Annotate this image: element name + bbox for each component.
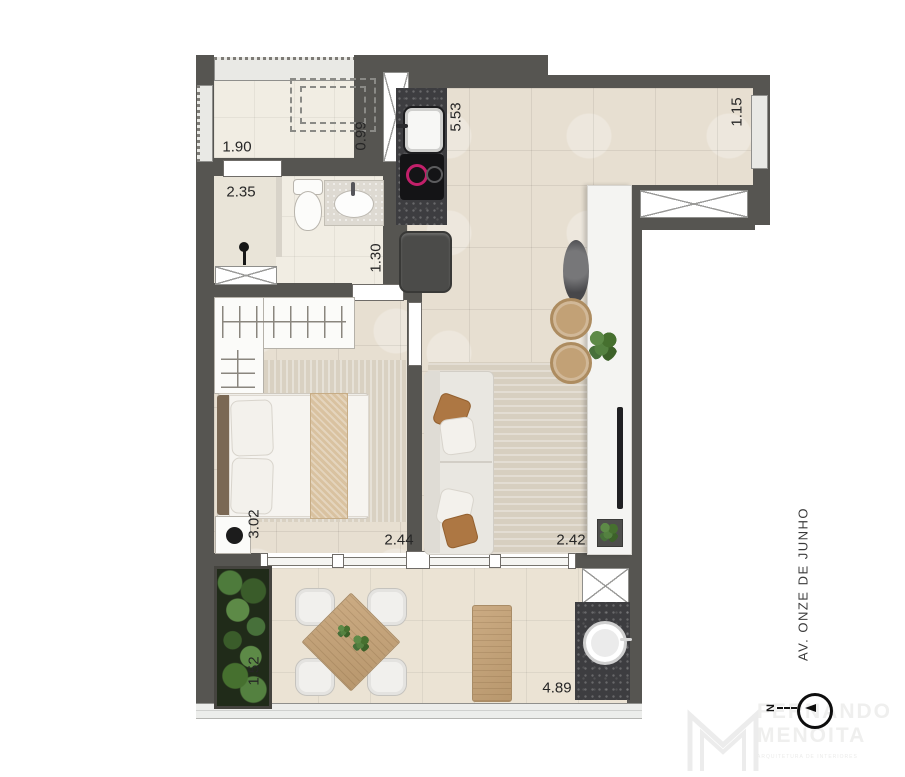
refrigerator <box>399 231 452 293</box>
island-plant-icon <box>588 328 618 362</box>
sliding-door-stile <box>332 554 344 568</box>
bedroom-door-leaf <box>408 302 422 366</box>
console-plant-icon <box>599 521 619 543</box>
wall-top-right <box>548 75 770 88</box>
bar-stool <box>550 298 592 340</box>
compass-needle-icon <box>805 704 816 712</box>
tv <box>617 407 623 509</box>
laundry-left-window <box>197 85 213 162</box>
sliding-door-jamb <box>568 553 576 569</box>
bed-throw-blanket <box>310 393 348 519</box>
compass-dashed-line-icon <box>777 707 797 709</box>
wall-terrace-right <box>573 553 642 568</box>
compass-north-label: N <box>765 704 777 712</box>
dim-laundry-depth: 0.99 <box>353 121 370 150</box>
bathroom-shaft-icon <box>215 266 277 285</box>
table-plant-icon <box>337 624 351 638</box>
bed-pillow <box>230 399 274 456</box>
bathroom-door <box>352 284 404 301</box>
dim-side-window: 1.15 <box>729 97 746 126</box>
table-lamp-icon <box>226 527 243 544</box>
bar-stool <box>550 342 592 384</box>
floor-plan-canvas: 1.90 0.99 2.35 1.30 5.53 1.15 3.02 2.44 … <box>0 0 905 777</box>
vanity-faucet-icon <box>351 182 355 196</box>
closet-shelf-rod <box>221 350 255 388</box>
table-plant-icon <box>352 634 370 652</box>
side-window <box>751 95 768 169</box>
brand-tagline: ARQUITETURA DE INTERIORES <box>757 754 858 760</box>
kitchen-faucet-icon <box>396 124 408 128</box>
terrace-sink <box>583 621 627 665</box>
dim-living-width: 2.42 <box>556 532 585 549</box>
sofa-pillow-white <box>439 416 478 456</box>
dim-bathroom-depth: 1.30 <box>368 243 385 272</box>
toilet-bowl <box>294 191 322 231</box>
dim-bedroom-depth: 3.02 <box>246 509 263 538</box>
wall-top-kitchen <box>407 55 548 88</box>
dim-bedroom-width: 2.44 <box>384 532 413 549</box>
cooktop-burner-active-icon <box>406 164 428 186</box>
brand-monogram-icon <box>686 697 760 773</box>
laundry-door <box>223 160 282 177</box>
shower-glass-partition <box>276 177 282 257</box>
dim-terrace-width: 4.89 <box>542 680 571 697</box>
island-console-cabinet <box>587 185 632 555</box>
terrace-faucet-icon <box>620 638 632 641</box>
window-right-horizontal-icon <box>640 190 748 218</box>
bed-pillow <box>230 457 274 514</box>
kitchen-sink <box>403 106 445 154</box>
sliding-door-stile <box>489 554 501 568</box>
terrace-planter <box>214 566 272 709</box>
washer-dashed-inner <box>300 86 366 124</box>
terrace-cabinet-icon <box>582 568 629 604</box>
dim-terrace-depth: 1.52 <box>246 656 263 685</box>
dim-kitchen-run: 5.53 <box>448 102 465 131</box>
cooktop-burner-icon <box>426 166 443 183</box>
street-label: AV. ONZE DE JUNHO <box>796 507 811 661</box>
closet-hanger-rod <box>222 306 346 338</box>
terrace-bench <box>472 605 512 702</box>
bed-headboard <box>217 395 229 515</box>
shower-stem-icon <box>243 251 246 265</box>
dim-bathroom-width: 2.35 <box>226 184 255 201</box>
sofa-backrest <box>424 371 440 553</box>
sofa-cushion-split <box>440 461 492 463</box>
dim-laundry-width: 1.90 <box>222 139 251 156</box>
island-appliance <box>563 240 589 302</box>
